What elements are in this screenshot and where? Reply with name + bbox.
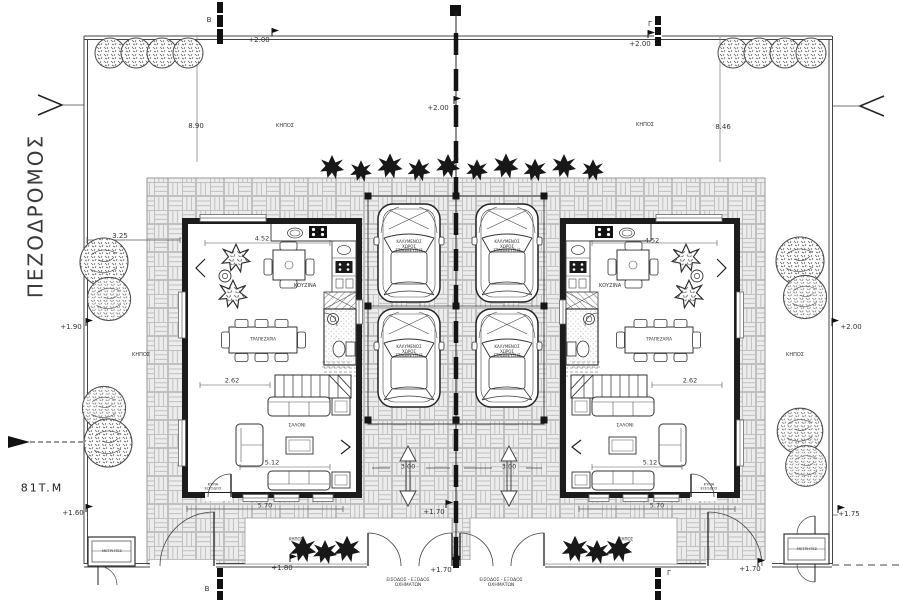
vehicle-gate-label-line: ΟΧΗΜΑΤΩΝ <box>386 583 429 588</box>
garden-label: ΚΗΠΟΣ <box>619 538 633 543</box>
street-name-label: ΠΕΖΟΔΡΟΜΟΣ <box>25 134 48 298</box>
entrance-label: ΚΥΡΙΑ ΕΙΣΟΔΟΣ <box>205 483 222 492</box>
section-marker: Β <box>205 585 210 593</box>
level-label: +2.00 <box>248 36 269 44</box>
entrance-label-line: ΕΙΣΟΔΟΣ <box>701 487 718 491</box>
site-plan-drawing <box>0 0 900 603</box>
car-space-label-line: ΣΤΑΘΜΕΥΣΗΣ <box>493 354 520 359</box>
section-marker: Γ <box>648 20 652 28</box>
dim-label: 4.52 <box>255 235 269 242</box>
garden-label: ΚΗΠΟΣ <box>276 124 294 130</box>
room-label-kitchen: ΚΟΥΖΙΝΑ <box>294 284 316 290</box>
vehicle-gate-label: ΕΙΣΟΔΟΣ - ΕΞΟΔΟΣ ΟΧΗΜΑΤΩΝ <box>479 578 522 588</box>
car-space-label: ΚΑΛΥΜΕΝΟΣ ΧΩΡΟΣ ΣΤΑΘΜΕΥΣΗΣ <box>395 345 422 359</box>
dim-label: 5.12 <box>643 459 657 466</box>
garden-label: ΚΗΠΟΣ <box>786 353 804 359</box>
meter-label: ΜΕΤΡΗΤΕΣ <box>102 549 122 553</box>
room-label-dining: ΤΡΑΠΕΖΑΡΙΑ <box>646 338 672 343</box>
level-label: +1.70 <box>423 508 444 516</box>
level-label: +1.90 <box>60 323 81 331</box>
datum-arrow-bottom-left <box>8 436 84 448</box>
level-label: +1.80 <box>271 564 292 572</box>
car-space-label-line: ΣΤΑΘΜΕΥΣΗΣ <box>395 249 422 254</box>
dim-label: 5.70 <box>258 502 272 509</box>
car-space-label: ΚΑΛΥΜΕΝΟΣ ΧΩΡΟΣ ΣΤΑΘΜΕΥΣΗΣ <box>493 345 520 359</box>
meter-label: ΜΕΤΡΗΤΕΣ <box>797 547 817 551</box>
car-space-label-line: ΣΤΑΘΜΕΥΣΗΣ <box>395 354 422 359</box>
level-label: +2.00 <box>840 323 861 331</box>
dim-label: 8.46 <box>715 123 731 131</box>
dim-label: 5.12 <box>265 459 279 466</box>
level-label: +2.00 <box>427 104 448 112</box>
entrance-arrow-right <box>832 96 884 116</box>
car-space-label-line: ΣΤΑΘΜΕΥΣΗΣ <box>493 249 520 254</box>
dim-label: 3.00 <box>502 463 516 470</box>
garden-label: ΚΗΠΟΣ <box>636 123 654 129</box>
entrance-label: ΚΥΡΙΑ ΕΙΣΟΔΟΣ <box>701 483 718 492</box>
section-marker: Β <box>207 16 212 24</box>
house-right <box>560 215 744 513</box>
room-label-living: ΣΑΛΟΝΙ <box>616 423 633 428</box>
vehicle-gate-label: ΕΙΣΟΔΟΣ - ΕΞΟΔΟΣ ΟΧΗΜΑΤΩΝ <box>386 578 429 588</box>
dim-label: 4.52 <box>645 237 659 244</box>
dim-label: 8.90 <box>188 122 204 130</box>
section-marker: Γ <box>667 569 671 577</box>
dim-label: 2.62 <box>225 377 239 384</box>
plot-area-label: 81T.M <box>21 483 63 496</box>
car-space-label: ΚΑΛΥΜΕΝΟΣ ΧΩΡΟΣ ΣΤΑΘΜΕΥΣΗΣ <box>395 240 422 254</box>
room-label-dining: ΤΡΑΠΕΖΑΡΙΑ <box>250 338 276 343</box>
dim-label: 5.70 <box>650 502 664 509</box>
garden-label: ΚΗΠΟΣ <box>289 538 303 543</box>
level-label: +1.75 <box>838 510 859 518</box>
dim-label: 3.00 <box>401 463 415 470</box>
meter-box-left <box>88 537 135 585</box>
dim-label: 2.62 <box>683 377 697 384</box>
entrance-label-line: ΕΙΣΟΔΟΣ <box>205 487 222 491</box>
level-label: +1.70 <box>430 566 451 574</box>
entrance-arrow-left <box>38 95 84 115</box>
level-label: +1.60 <box>62 509 83 517</box>
floor-plan-page: ΠΕΖΟΔΡΟΜΟΣ 81T.M Β Β Γ Γ +2.00 +2.00 +2.… <box>0 0 900 603</box>
room-label-kitchen: ΚΟΥΖΙΝΑ <box>599 284 621 290</box>
car-space-label: ΚΑΛΥΜΕΝΟΣ ΧΩΡΟΣ ΣΤΑΘΜΕΥΣΗΣ <box>493 240 520 254</box>
room-label-living: ΣΑΛΟΝΙ <box>288 423 305 428</box>
house-left <box>179 215 363 513</box>
garden-label: ΚΗΠΟΣ <box>132 353 150 359</box>
dim-label: 3.25 <box>112 232 128 240</box>
vehicle-gate-label-line: ΟΧΗΜΑΤΩΝ <box>479 583 522 588</box>
level-label: +1.70 <box>739 565 760 573</box>
level-label: +2.00 <box>629 40 650 48</box>
